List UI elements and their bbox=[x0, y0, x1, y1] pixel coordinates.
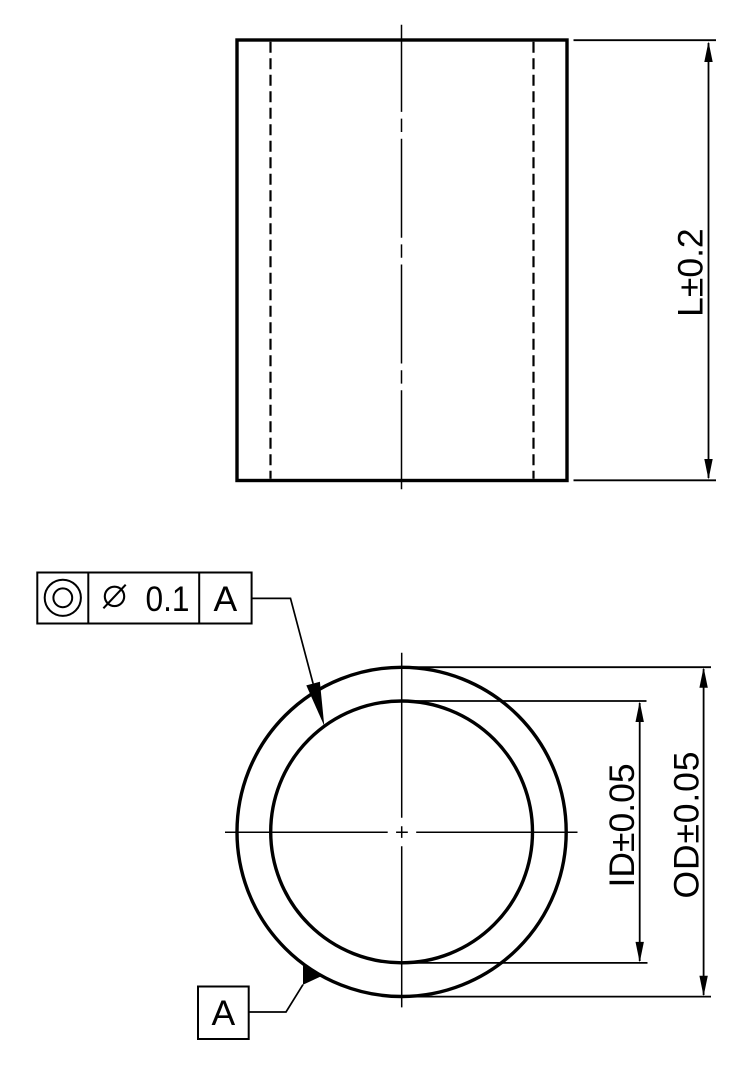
svg-text:ID±0.05: ID±0.05 bbox=[602, 763, 642, 887]
svg-text:L±0.2: L±0.2 bbox=[671, 228, 711, 317]
svg-text:OD±0.05: OD±0.05 bbox=[667, 752, 707, 899]
svg-text:0.1: 0.1 bbox=[146, 579, 190, 619]
svg-text:A: A bbox=[211, 993, 235, 1033]
svg-text:A: A bbox=[214, 579, 238, 619]
